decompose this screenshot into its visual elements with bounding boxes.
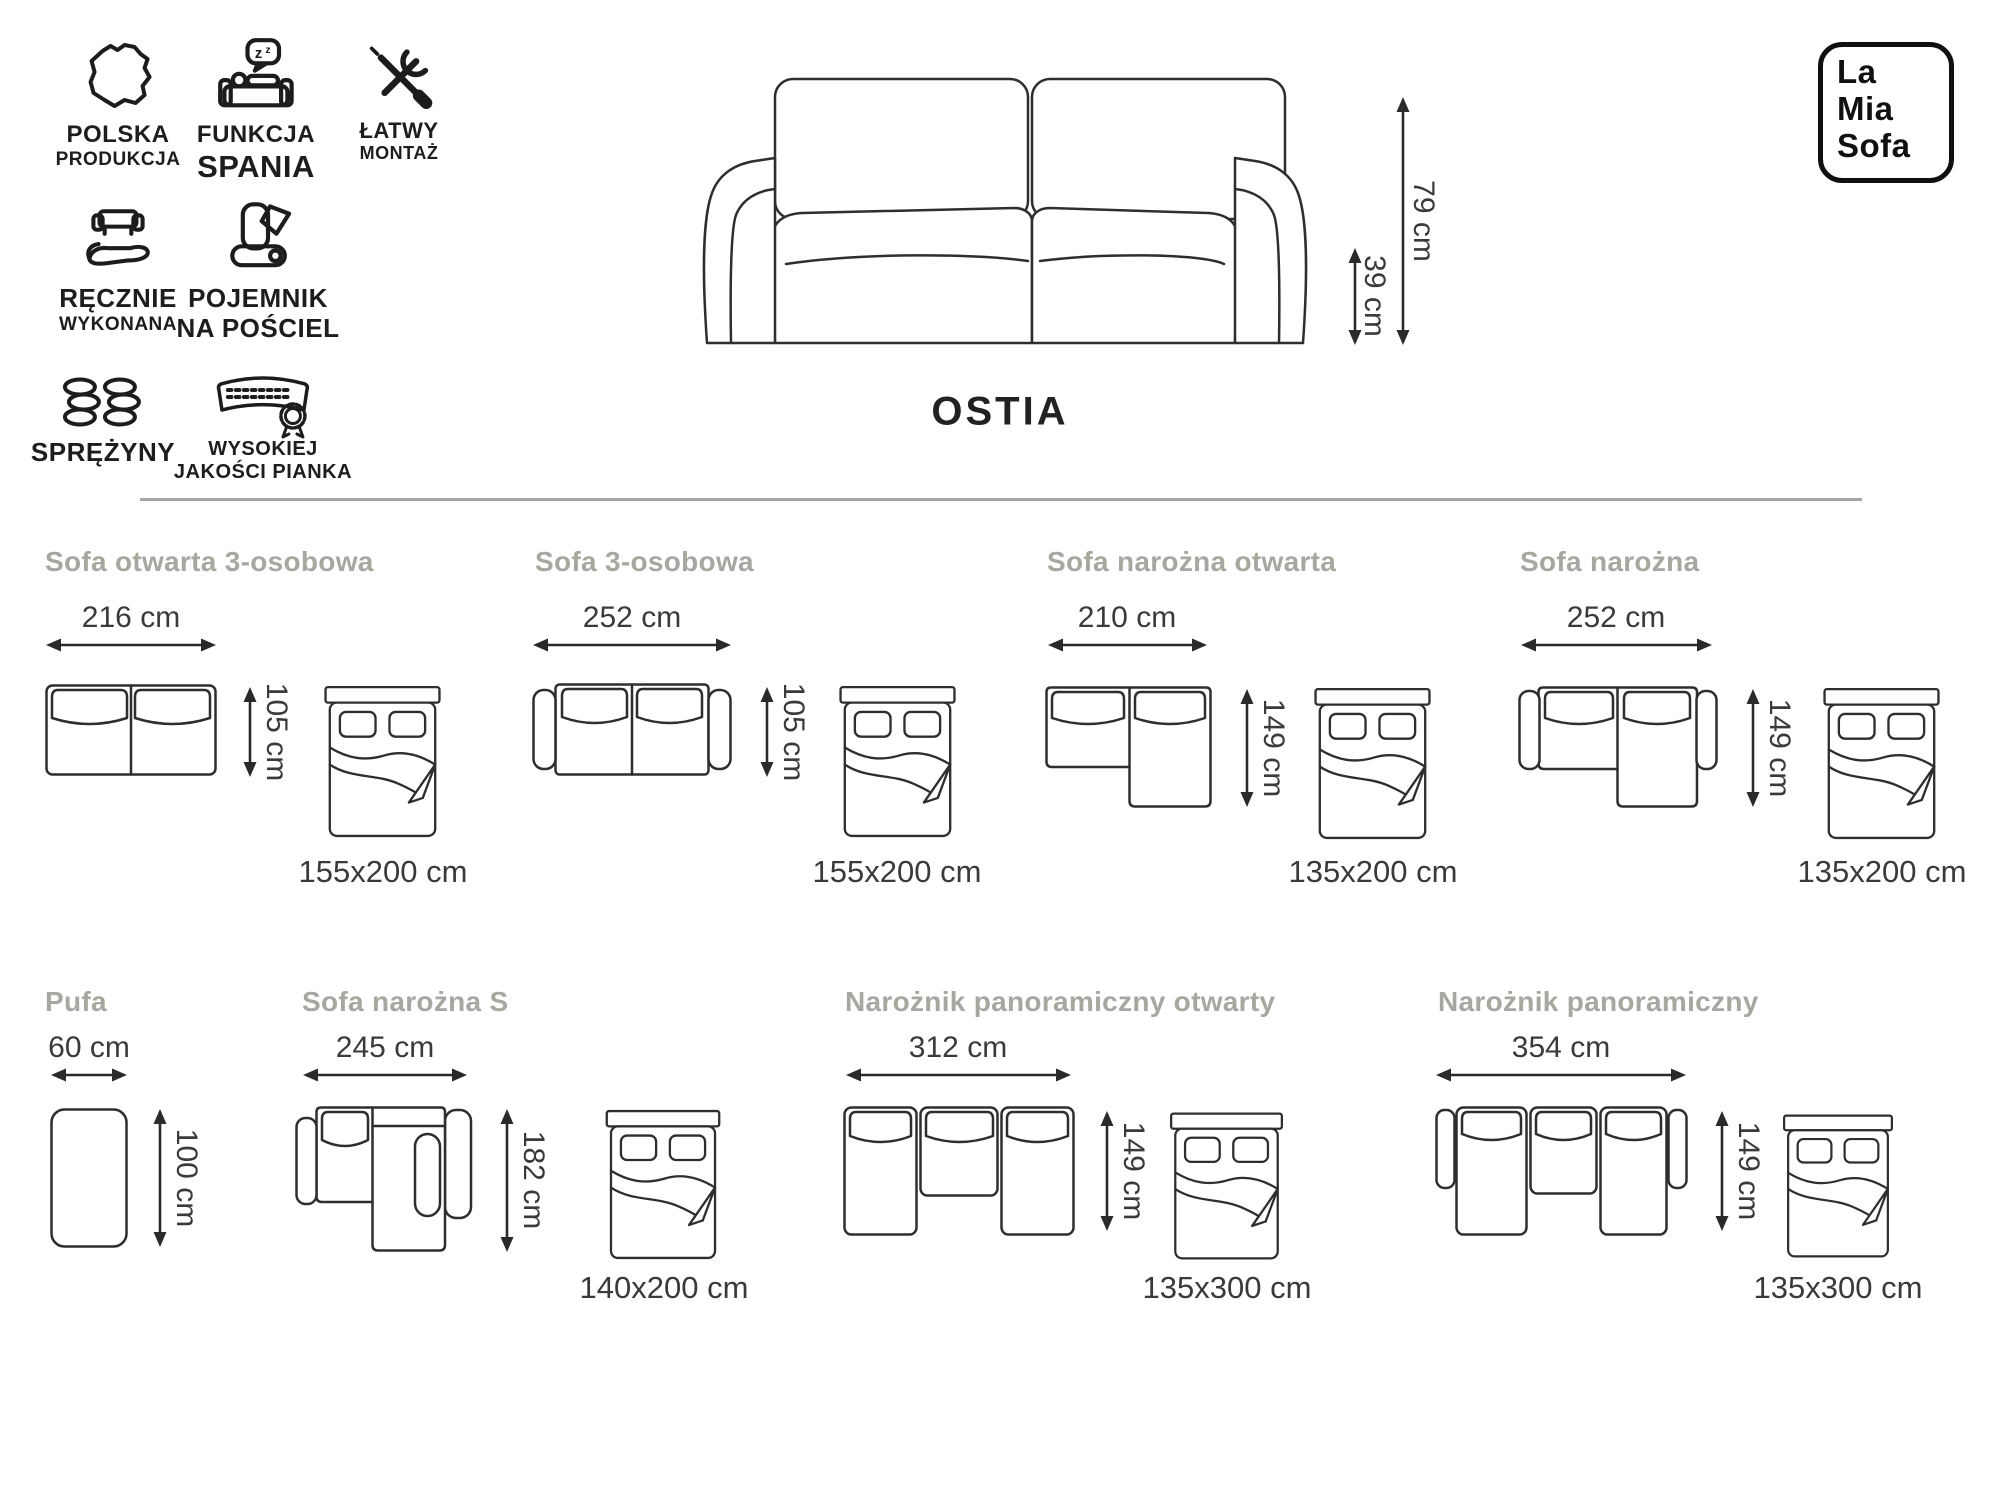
feature-label: SPRĘŻYNY [31, 438, 175, 468]
feature-sprezyny: SPRĘŻYNY [31, 372, 175, 468]
tools-icon [362, 41, 436, 115]
feature-label: WYSOKIEJ [208, 438, 318, 461]
feature-pojemnik-na-posciel: POJEMNIK NA POŚCIEL [177, 196, 340, 344]
seat-height-label: 39 cm [1357, 255, 1391, 337]
sofa-top-view [1518, 686, 1718, 808]
config-width-label: 60 cm [48, 1031, 130, 1065]
sofa-top-view [1045, 686, 1212, 808]
config-depth-label: 182 cm [516, 1131, 550, 1229]
width-arrow [45, 636, 217, 654]
bed-size-label: 155x200 cm [813, 854, 982, 890]
sofa-front-view [680, 57, 1330, 347]
depth-arrow [1238, 688, 1256, 808]
poland-map-icon [78, 38, 158, 118]
feature-sublabel: WYKONANA [59, 314, 177, 336]
bed-top-view [837, 684, 958, 839]
svg-text:z: z [265, 44, 270, 56]
svg-text:z: z [255, 46, 262, 62]
section-divider [140, 498, 1862, 501]
width-arrow [1435, 1066, 1687, 1084]
feature-label: ŁATWY [359, 118, 438, 143]
depth-arrow [1098, 1110, 1116, 1232]
bed-top-view [603, 1108, 723, 1261]
width-arrow [1047, 636, 1208, 654]
config-width-label: 354 cm [1512, 1031, 1610, 1065]
feature-sublabel: SPANIA [197, 149, 315, 185]
config-title: Narożnik panoramiczny otwarty [845, 986, 1275, 1018]
feature-label: POLSKA [66, 121, 169, 149]
config-width-label: 216 cm [82, 601, 180, 635]
config-depth-label: 149 cm [1762, 699, 1796, 797]
total-height-label: 79 cm [1406, 180, 1440, 262]
feature-label: POJEMNIK [188, 284, 328, 314]
depth-arrow [241, 686, 259, 778]
config-depth-label: 100 cm [169, 1129, 203, 1227]
bed-top-view [1170, 1110, 1283, 1262]
springs-icon [57, 375, 149, 435]
feature-sublabel: NA POŚCIEL [177, 314, 340, 344]
product-name: OSTIA [931, 390, 1068, 435]
feature-wysokiej-jakosci-pianka: WYSOKIEJ JAKOŚCI PIANKA [174, 372, 352, 484]
bed-size-label: 135x300 cm [1754, 1270, 1923, 1306]
bed-size-label: 135x300 cm [1143, 1270, 1312, 1306]
config-width-label: 312 cm [909, 1031, 1007, 1065]
bed-size-label: 140x200 cm [580, 1270, 749, 1306]
config-title: Sofa narożna S [302, 986, 508, 1018]
sleep-function-icon: z z [214, 36, 298, 120]
handmade-icon [77, 201, 159, 283]
foam-icon [211, 368, 315, 442]
sofa-top-view [45, 684, 217, 776]
config-width-label: 245 cm [336, 1031, 434, 1065]
feature-label: RĘCZNIE [59, 284, 177, 314]
depth-arrow [151, 1108, 169, 1248]
sofa-top-view [295, 1106, 473, 1252]
bed-top-view [322, 684, 443, 839]
bed-size-label: 155x200 cm [299, 854, 468, 890]
bed-size-label: 135x200 cm [1798, 854, 1967, 890]
config-width-label: 252 cm [583, 601, 681, 635]
config-depth-label: 105 cm [259, 683, 293, 781]
config-title: Sofa narożna otwarta [1047, 546, 1336, 578]
brand-logo-line: Sofa [1837, 128, 1949, 165]
depth-arrow [1713, 1110, 1731, 1232]
feature-polska-produkcja: POLSKA PRODUKCJA [56, 35, 181, 170]
feature-label: FUNKCJA [197, 121, 315, 149]
config-width-label: 210 cm [1078, 601, 1176, 635]
depth-arrow [1744, 688, 1762, 808]
brand-logo: La Mia Sofa [1818, 42, 1954, 183]
config-title: Sofa 3-osobowa [535, 546, 754, 578]
feature-recznie-wykonana: RĘCZNIE WYKONANA [59, 200, 177, 336]
bed-top-view [1312, 686, 1433, 841]
feature-funkcja-spania: z z FUNKCJA SPANIA [197, 35, 315, 184]
config-depth-label: 149 cm [1256, 699, 1290, 797]
depth-arrow [498, 1108, 516, 1253]
width-arrow [532, 636, 732, 654]
config-depth-label: 149 cm [1731, 1122, 1765, 1220]
sofa-top-view [843, 1106, 1075, 1236]
brand-logo-line: La [1837, 54, 1949, 91]
pouf-top-view [50, 1108, 128, 1248]
bed-size-label: 135x200 cm [1289, 854, 1458, 890]
bed-top-view [1820, 686, 1943, 841]
width-arrow [845, 1066, 1072, 1084]
width-arrow [302, 1066, 468, 1084]
width-arrow [1520, 636, 1713, 654]
config-depth-label: 149 cm [1116, 1122, 1150, 1220]
sofa-top-view [532, 683, 732, 776]
spec-sheet: POLSKA PRODUKCJA z z FUNKCJA SPANIA [0, 0, 2000, 1500]
width-arrow [50, 1066, 128, 1084]
bedding-container-icon [216, 198, 300, 282]
feature-sublabel: PRODUKCJA [56, 149, 181, 171]
config-title: Sofa otwarta 3-osobowa [45, 546, 374, 578]
brand-logo-line: Mia [1837, 91, 1949, 128]
config-width-label: 252 cm [1567, 601, 1665, 635]
feature-sublabel: MONTAŻ [360, 143, 439, 164]
depth-arrow [758, 686, 776, 778]
config-depth-label: 105 cm [776, 683, 810, 781]
config-title: Sofa narożna [1520, 546, 1699, 578]
sofa-top-view [1435, 1106, 1688, 1237]
feature-latwy-montaz: ŁATWY MONTAŻ [359, 38, 438, 164]
bed-top-view [1783, 1110, 1893, 1262]
config-title: Pufa [45, 986, 107, 1018]
config-title: Narożnik panoramiczny [1438, 986, 1759, 1018]
feature-sublabel: JAKOŚCI PIANKA [174, 461, 352, 484]
